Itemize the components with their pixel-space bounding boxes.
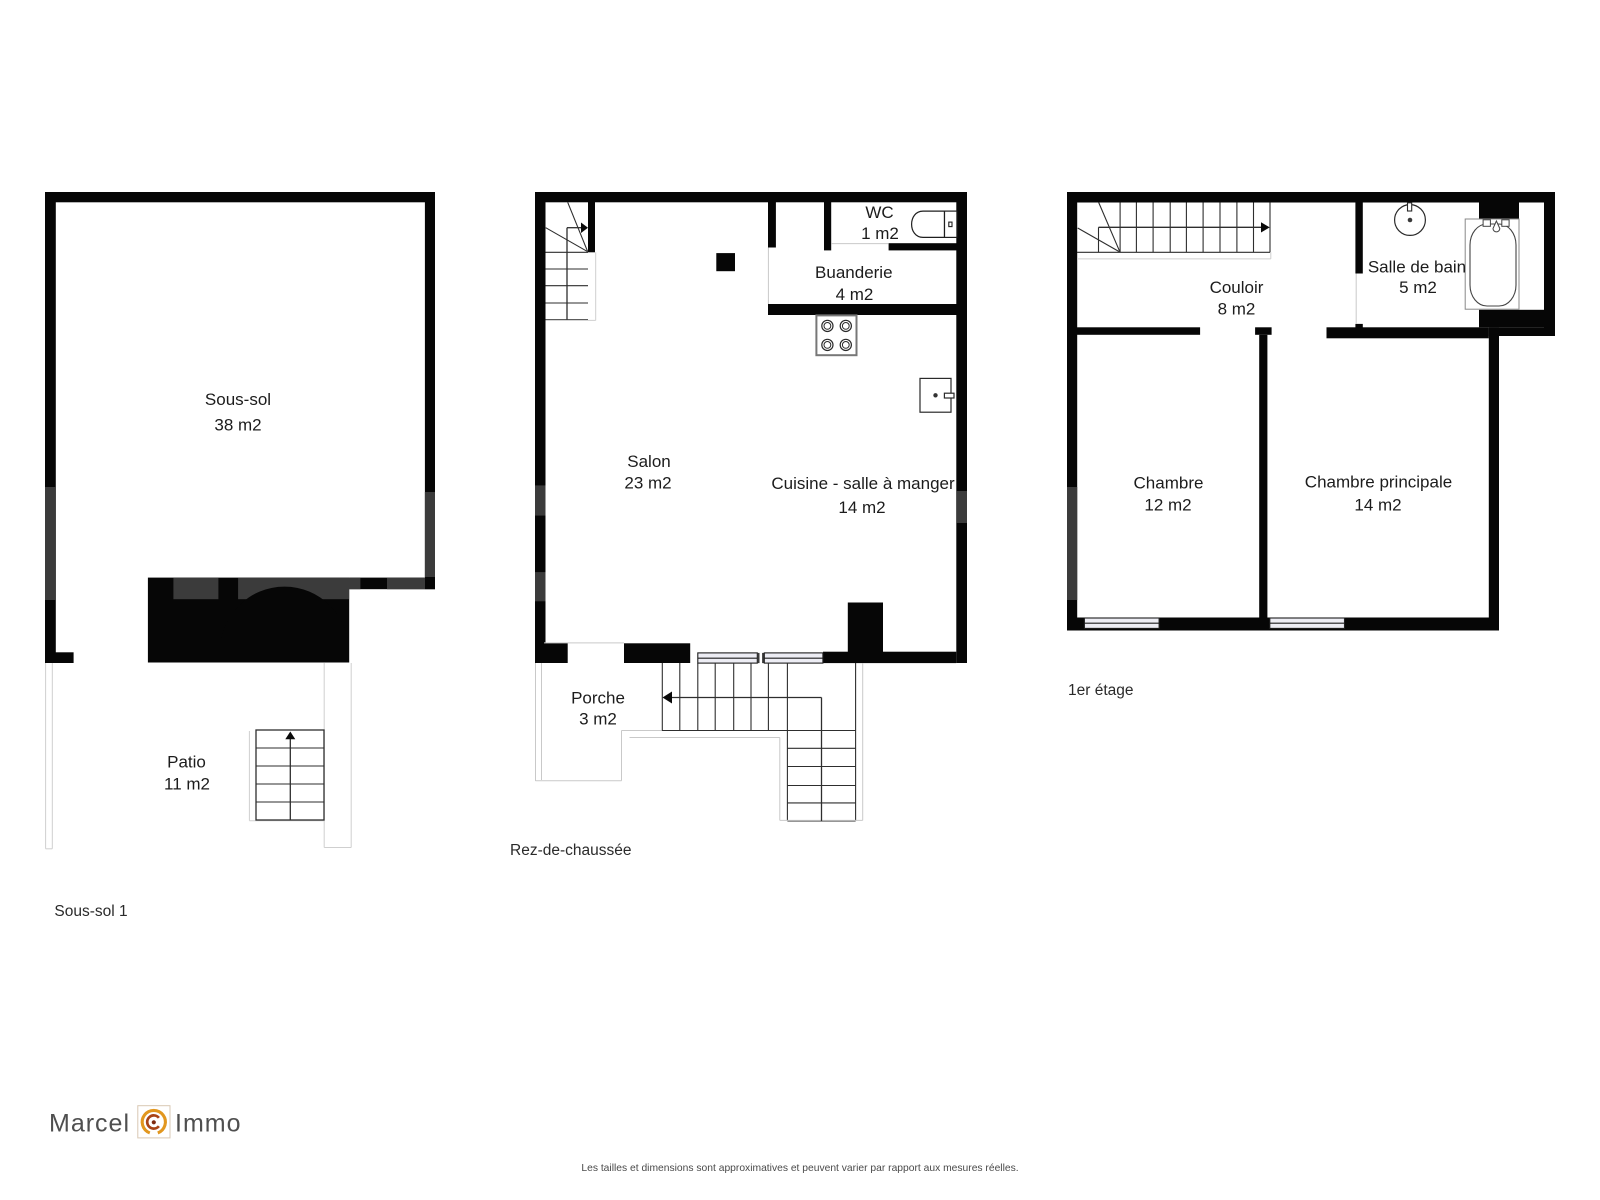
svg-text:Chambre principale: Chambre principale: [1305, 473, 1452, 492]
svg-text:WC: WC: [865, 203, 893, 222]
svg-text:14 m2: 14 m2: [1354, 496, 1401, 515]
svg-text:Chambre: Chambre: [1134, 474, 1204, 493]
svg-text:14 m2: 14 m2: [838, 498, 885, 517]
svg-text:5 m2: 5 m2: [1399, 278, 1437, 297]
svg-text:Immo: Immo: [175, 1110, 242, 1138]
svg-text:Salle de bain: Salle de bain: [1368, 258, 1466, 277]
svg-text:Sous-sol: Sous-sol: [205, 390, 271, 409]
svg-text:1 m2: 1 m2: [861, 224, 899, 243]
svg-text:Salon: Salon: [627, 452, 670, 471]
svg-text:Marcel: Marcel: [49, 1110, 130, 1138]
svg-text:4 m2: 4 m2: [836, 285, 874, 304]
svg-text:Patio: Patio: [167, 753, 206, 772]
svg-text:Buanderie: Buanderie: [815, 263, 893, 282]
svg-text:Couloir: Couloir: [1210, 278, 1264, 297]
svg-text:23 m2: 23 m2: [624, 474, 671, 493]
svg-text:12 m2: 12 m2: [1144, 496, 1191, 515]
svg-text:Cuisine - salle à manger: Cuisine - salle à manger: [771, 474, 955, 493]
svg-text:Porche: Porche: [571, 689, 625, 708]
svg-text:1er étage: 1er étage: [1068, 682, 1134, 699]
svg-text:Rez-de-chaussée: Rez-de-chaussée: [510, 842, 631, 859]
svg-text:38 m2: 38 m2: [214, 416, 261, 435]
svg-text:8 m2: 8 m2: [1218, 300, 1256, 319]
svg-text:11 m2: 11 m2: [164, 775, 210, 794]
svg-text:3 m2: 3 m2: [579, 710, 617, 729]
svg-text:Sous-sol 1: Sous-sol 1: [54, 903, 127, 920]
svg-text:Les tailles et dimensions sont: Les tailles et dimensions sont approxima…: [581, 1163, 1018, 1174]
